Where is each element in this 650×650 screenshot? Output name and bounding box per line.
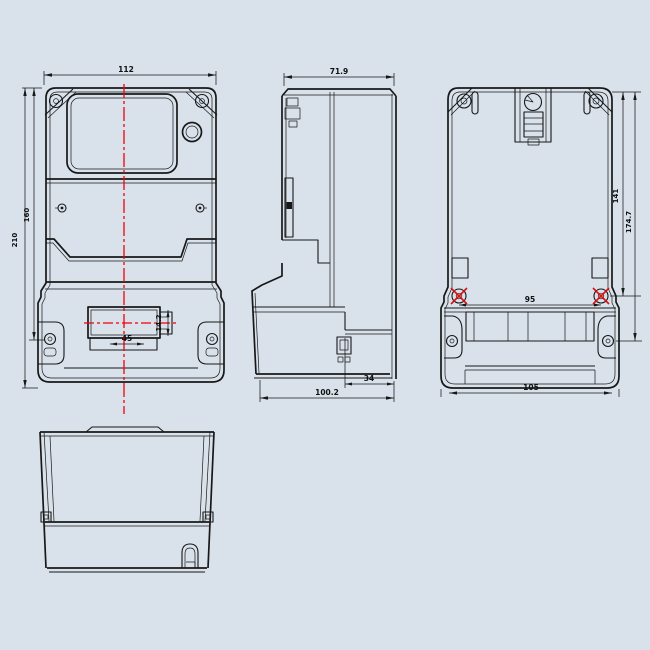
dim-arrow: [345, 383, 352, 386]
bottom-view: [40, 427, 214, 572]
seal-button-inner: [186, 126, 198, 138]
rear-mount-height-upper-dim: 141: [612, 189, 620, 204]
rear-mount-screw-right-cross: [593, 288, 609, 304]
top-view-left-side-3: [50, 436, 54, 521]
rear-mount-height-full-dim: 174.7: [625, 211, 633, 233]
lcd-window-inner: [71, 98, 173, 169]
top-view-clip-right: [203, 512, 213, 522]
side-view: 71.9 34 100.2: [252, 67, 396, 402]
rear-mount-screw-left-cross: [451, 288, 467, 304]
top-view-right-side-2: [205, 432, 210, 521]
dim-arrow: [137, 343, 144, 346]
dim-arrow: [260, 396, 268, 399]
front-side-screw-left-dot: [61, 207, 64, 210]
front-height-inner-dim: 160: [23, 208, 31, 223]
rear-corner-chamfer-left: [448, 88, 472, 112]
front-corner-chamfer-right-inner: [186, 92, 214, 118]
side-cover-depth-dim: 34: [364, 374, 374, 383]
side-depth-dim: 71.9: [330, 67, 349, 76]
front-seal-slot-right: [206, 348, 218, 356]
dim-arrow: [23, 380, 26, 388]
dim-arrow: [386, 396, 394, 399]
dim-arrow: [44, 73, 52, 76]
top-view-notch-inner: [185, 548, 195, 568]
front-corner-chamfer-right: [189, 89, 217, 115]
lcd-window-outer: [67, 94, 177, 173]
top-view-right-side-3: [200, 436, 204, 521]
rear-corner-screw-left-pin: [461, 98, 467, 104]
hanger-ladder-rungs: [524, 118, 543, 131]
rear-cutout-left: [452, 258, 468, 278]
dim-arrow: [386, 75, 394, 78]
dim-arrow: [621, 92, 624, 100]
side-seal-detail-1: [338, 357, 343, 362]
rear-body-outline: [441, 88, 619, 388]
top-view-notch-outer: [182, 544, 198, 568]
dim-arrow: [284, 75, 292, 78]
side-top-clip-1: [287, 98, 298, 106]
terminal-block-band: [466, 312, 594, 341]
side-seal-screw-housing: [337, 337, 351, 354]
top-view-notch-base: [186, 562, 195, 568]
side-top-clip-2: [285, 108, 300, 119]
rear-lower-screw-left-pin: [450, 339, 454, 343]
dim-arrow: [23, 88, 26, 96]
side-step-profile: [282, 240, 330, 263]
recess-width-dim: 45: [122, 334, 132, 343]
front-bottom-screw-left-pin: [48, 337, 52, 341]
dim-arrow: [32, 88, 35, 96]
dim-arrow: [594, 304, 601, 307]
dim-arrow: [387, 383, 394, 386]
top-view-clip-left: [41, 512, 51, 522]
front-nameplate-edge-inner: [46, 243, 216, 261]
front-seal-slot-left: [44, 348, 56, 356]
dim-arrow: [604, 391, 612, 394]
hanger-bracket-outer: [515, 88, 551, 142]
side-top-clip-3: [289, 121, 297, 127]
front-bottom-screw-right: [207, 334, 218, 345]
rear-cutout-right: [592, 258, 608, 278]
front-bottom-screw-left: [45, 334, 56, 345]
dim-arrow: [459, 304, 466, 307]
front-nameplate-edge: [46, 239, 216, 257]
rear-lower-screw-right: [603, 336, 614, 347]
rear-slot-left: [472, 92, 478, 114]
dim-arrow: [32, 332, 35, 340]
terminal-block-dividers: [474, 312, 586, 341]
rear-view: 141 174.7 95 105: [441, 88, 642, 397]
front-bottom-screw-right-pin: [210, 337, 214, 341]
rear-bottom-lip-line-2: [465, 370, 595, 384]
rear-bracket-left: [444, 316, 462, 358]
dim-arrow: [208, 73, 216, 76]
side-seal-screw: [340, 340, 348, 350]
recess-height-dim: 14.2: [155, 314, 163, 331]
rear-bottom-width-dim: 105: [523, 383, 539, 392]
hanger-ladder: [524, 112, 543, 137]
top-view-left-side-2: [44, 432, 49, 521]
side-seal-detail-2: [345, 357, 350, 362]
drawing-sheet: 112 210 160 45 14.2: [0, 0, 650, 650]
dim-arrow: [621, 288, 624, 296]
rear-lower-screw-left: [447, 336, 458, 347]
front-corner-screw-left-pin: [54, 99, 59, 104]
side-total-depth-dim: 100.2: [315, 388, 339, 397]
dim-ext-line: [29, 88, 44, 340]
rear-bracket-right: [598, 316, 616, 358]
rear-body-inner-wall: [445, 92, 615, 384]
dim-ext-line: [22, 88, 42, 388]
front-side-screw-right-dot: [199, 207, 202, 210]
dim-arrow: [449, 391, 457, 394]
dim-arrow: [167, 310, 170, 317]
front-height-outer-dim: 210: [11, 233, 19, 248]
front-view: 112 210 160 45 14.2: [11, 65, 224, 414]
front-width-dim: 112: [118, 65, 134, 74]
side-mid-clip-latch: [287, 202, 293, 209]
meter-engineering-drawing: 112 210 160 45 14.2: [0, 0, 650, 650]
dim-arrow: [110, 343, 117, 346]
dim-arrow: [633, 333, 636, 341]
rear-corner-screw-right-pin: [593, 98, 599, 104]
dim-arrow: [633, 92, 636, 100]
seal-button-outer: [183, 123, 202, 142]
rear-mount-width-dim: 95: [525, 295, 535, 304]
dim-arrow: [167, 329, 170, 336]
rear-lower-screw-right-pin: [606, 339, 610, 343]
